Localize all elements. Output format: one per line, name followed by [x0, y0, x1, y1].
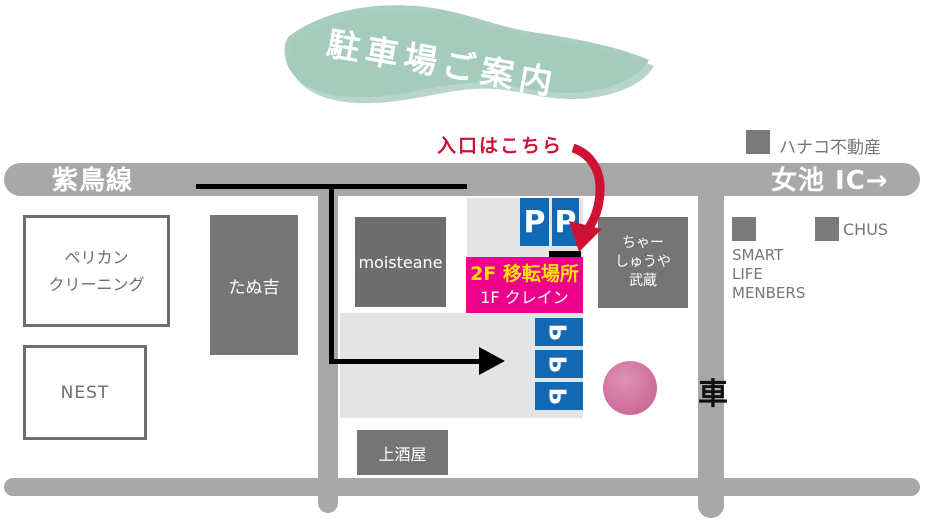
building-pelican-cleaning: ペリカン クリーニング [23, 215, 170, 327]
building-label-line: 武蔵 [629, 272, 657, 291]
route-arrow-shaft [329, 359, 479, 364]
smart-life-line: SMART [732, 246, 805, 265]
parking-p-icon: P [520, 198, 549, 246]
parking-p-icon: P [552, 198, 579, 246]
road-label-shicho-line: 紫鳥線 [52, 167, 133, 195]
parking-p-icon: P [535, 318, 583, 346]
entrance-label: 入口はこちら [437, 131, 563, 158]
building-label-line: しゅうや [615, 253, 671, 272]
chus-marker [815, 217, 839, 241]
pink-circle-marker [603, 361, 657, 415]
route-arrow-head-icon [479, 347, 505, 375]
p-letter: P [555, 205, 577, 240]
parking-p-icon: P [535, 382, 583, 410]
building-label: 上酒屋 [378, 441, 426, 465]
hanako-estate-label: ハナコ不動産 [779, 133, 881, 158]
smart-life-line: MENBERS [732, 284, 805, 303]
building-chashuya-musashi: ちゃー しゅうや 武蔵 [598, 217, 688, 308]
route-line-vertical [329, 184, 334, 364]
building-moisteane: moisteane [355, 217, 446, 307]
smart-life-line: LIFE [732, 265, 805, 284]
p-letter: P [546, 324, 572, 341]
parking-p-icon: P [535, 350, 583, 378]
building-tanukichi: たぬ吉 [210, 215, 298, 355]
car-kanji-label: 車 [698, 369, 728, 413]
road-right-vertical [698, 196, 724, 518]
smart-life-marker [732, 217, 756, 241]
building-kami-sakaya: 上酒屋 [357, 430, 448, 475]
building-nest: NEST [23, 345, 147, 440]
building-label-line: ペリカン [64, 244, 128, 271]
road-left-vertical [318, 196, 338, 513]
p-letter: P [546, 356, 572, 373]
banner-title: 駐車場ご案内 [324, 17, 563, 105]
parking-map: 紫鳥線 女池 IC→ ペリカン クリーニング NEST たぬ吉 moistean… [0, 0, 932, 523]
hanako-estate-marker [746, 130, 770, 154]
building-label-line: ちゃー [622, 234, 664, 253]
destination-floor1-label: 1F クレイン [480, 287, 568, 309]
destination-box: 2F 移転場所 1F クレイン [466, 257, 583, 313]
chus-label: CHUS [843, 220, 888, 239]
building-label: moisteane [358, 253, 442, 272]
road-bottom [4, 478, 920, 496]
smart-life-label: SMART LIFE MENBERS [732, 246, 805, 303]
p-letter: P [524, 205, 546, 240]
building-label: たぬ吉 [229, 273, 280, 298]
road-label-meike-ic: 女池 IC→ [771, 167, 889, 195]
destination-floor2-label: 2F 移転場所 [470, 261, 579, 287]
building-label-line: クリーニング [48, 271, 144, 298]
p-letter: P [546, 388, 572, 405]
building-label: NEST [61, 383, 110, 403]
